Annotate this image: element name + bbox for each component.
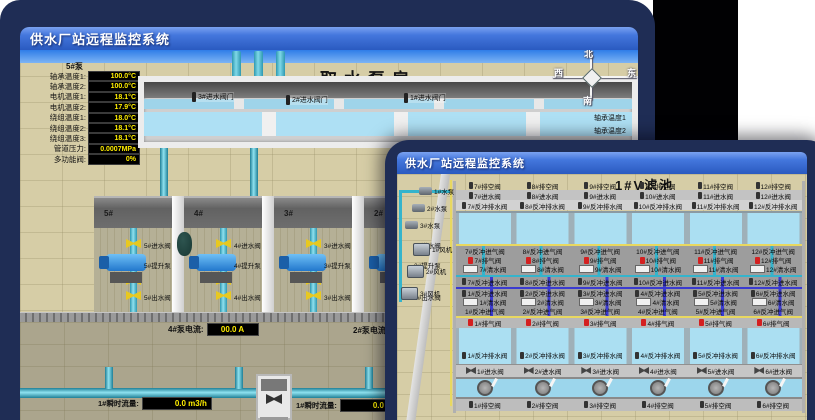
filter-pumps: 1#水泵 2#水泵 3#水泵 (405, 182, 454, 233)
riser-pipe (254, 51, 263, 78)
valve-label: 7#反冲进水阀 (467, 277, 507, 287)
valve-icon (634, 202, 638, 209)
valve-icon (642, 401, 646, 408)
blower-item[interactable]: 1#风机 (413, 238, 452, 260)
valve-bowtie-icon (581, 367, 591, 374)
valve-box-icon (635, 265, 650, 273)
pump-item[interactable]: 1#水泵 (419, 182, 454, 199)
row-drain-valves-lower: 1#排空阀2#排空阀3#排空阀4#排空阀5#排空阀6#排空阀 (456, 400, 802, 409)
valve-icon (756, 192, 760, 199)
valve-label: 6#反冲排水阀 (756, 350, 796, 360)
butterfly-valve-icon (592, 380, 608, 396)
valve-icon (693, 352, 697, 359)
alarm-valve-icon (468, 257, 473, 264)
valve-icon (640, 182, 644, 189)
row-backwash-water-valves-upper: 7#反冲进水阀8#反冲进水阀9#反冲进水阀10#反冲进水阀11#反冲进水阀12#… (456, 277, 802, 286)
valve-icon (469, 182, 473, 189)
alarm-valve-icon (468, 319, 473, 326)
valve-item[interactable]: 4#排气阀 (629, 318, 687, 327)
row-backwash-drain-valves-upper: 7#反冲排水阀8#反冲排水阀9#反冲排水阀10#反冲排水阀11#反冲排水阀12#… (456, 201, 802, 210)
pump-label: 3#提升泵 (324, 260, 351, 270)
valve-item[interactable]: 1#排气阀 (456, 318, 514, 327)
sensor-label-partial: 轴承温度1 (594, 113, 626, 123)
valve-label: 1#反冲排水阀 (467, 350, 507, 360)
valve-item[interactable]: 5#反冲进水阀 (687, 289, 745, 297)
valve-label: 9#进水阀 (589, 191, 616, 201)
sensor-label: 电机温度1: (34, 91, 86, 102)
screenshot-canvas: 供水厂站远程监控系统 取水泵房 5#泵 轴承温度1: 100.0°C 轴承温度2… (0, 0, 815, 420)
pump-icon (412, 204, 425, 212)
valve-icon (578, 352, 582, 359)
valve-label: 12#反冲排水阀 (754, 201, 797, 211)
alarm-valve-icon (640, 257, 645, 264)
compass-south: 南 (583, 94, 592, 107)
flow-value: 0.0 m3/h (142, 397, 212, 410)
pump-icon[interactable] (286, 254, 326, 271)
valve-item[interactable]: 10#进水阀 (629, 191, 687, 200)
valve-label: 6#排气阀 (763, 318, 790, 328)
valve-item[interactable]: 2#反冲排水阀 (514, 351, 572, 359)
valve-item[interactable]: 12#排气阀 (744, 256, 802, 264)
blower-label: 2#风机 (426, 266, 446, 276)
tank-down-pipe (160, 148, 168, 196)
valve-label: 8#进水阀 (532, 191, 559, 201)
valve-box-icon (750, 265, 765, 273)
valve-label: 3#排空阀 (589, 400, 616, 410)
valve-item[interactable]: 3#排气阀 (571, 318, 629, 327)
pump-label: 1#水泵 (434, 186, 454, 196)
valve-icon (692, 202, 696, 209)
valve-label: 1#进水阀 (477, 366, 504, 376)
valve-label: 12#反冲进水阀 (754, 277, 797, 287)
dosing-tank-icon (177, 232, 192, 256)
sensor-label: 管道压力: (34, 143, 86, 154)
pump-base (200, 272, 232, 283)
valve-item[interactable]: 3#进水阀 (571, 365, 629, 376)
blower-item[interactable]: 2#风机 (407, 260, 452, 282)
current-label: 2#泵电流: (353, 325, 389, 336)
gate-valve-label[interactable]: 2#进水阀门 (286, 95, 328, 105)
current-readout: 2#泵电流: (353, 325, 389, 336)
valve-icon (700, 401, 704, 408)
sensor-value: 17.9°C (88, 102, 140, 113)
valve-item[interactable]: 2#反冲进水阀 (514, 289, 572, 297)
valve-item[interactable]: 8#清水阀 (514, 265, 572, 273)
valve-label: 11#清水阀 (709, 264, 739, 274)
butterfly-valve[interactable] (744, 380, 802, 395)
valve-label: 12#进水阀 (761, 191, 791, 201)
valve-icon (527, 401, 531, 408)
valve-box-icon (636, 298, 651, 306)
valve-item[interactable]: 10#反冲进水阀 (629, 277, 687, 286)
window-v-filter: 供水厂站远程监控系统 1#V滤池 1#水泵 2#水泵 (397, 152, 807, 420)
valve-item[interactable]: 7#清水阀 (456, 265, 514, 273)
blower-icon (407, 265, 424, 278)
alarm-valve-icon (526, 257, 531, 264)
valve-icon (749, 202, 753, 209)
window-title: 供水厂站远程监控系统 (30, 29, 170, 48)
valve-label: 11#进水阀 (703, 191, 733, 201)
bay-id-label: 2# (374, 209, 383, 218)
valve-item[interactable]: 8#排空阀 (514, 181, 572, 190)
current-readout: 4#泵电流: 00.0 A (168, 323, 259, 336)
sensor-label: 绕组温度2: (34, 123, 86, 134)
sensor-label-partial: 轴承温度2 (594, 126, 626, 136)
valve-icon (635, 290, 639, 297)
window-v-filter-frame: 供水厂站远程监控系统 1#V滤池 1#水泵 2#水泵 (385, 140, 815, 420)
alarm-valve-icon (526, 319, 531, 326)
valve-bowtie-icon (466, 367, 476, 374)
valve-item[interactable]: 4#反冲进气阀 (629, 307, 687, 315)
valve-item[interactable]: 2#排空阀 (514, 400, 572, 409)
tank-water-row (144, 112, 632, 136)
sensor-label: 绕组温度1: (34, 112, 86, 123)
valve-item[interactable]: 12#进水阀 (744, 191, 802, 200)
valve-item[interactable]: 7#反冲进气阀 (456, 247, 514, 255)
sensor-value: 0.0007MPa (88, 144, 140, 155)
butterfly-valve[interactable] (629, 380, 687, 395)
valve-icon (584, 401, 588, 408)
filter-cells-upper (456, 211, 802, 244)
valve-label: 5#反冲排水阀 (698, 350, 738, 360)
valve-label: 5#反冲进气阀 (696, 306, 736, 316)
valve-item[interactable]: 9#反冲排水阀 (571, 201, 629, 210)
valve-bowtie-icon (697, 367, 707, 374)
flow-meter-icon[interactable] (256, 374, 292, 420)
alarm-valve-icon (641, 319, 646, 326)
valve-item[interactable]: 9#排气阀 (571, 256, 629, 264)
scene-v-filter: 1#V滤池 1#水泵 2#水泵 3#水泵 (397, 174, 807, 420)
alarm-valve-icon (757, 319, 762, 326)
valve-item[interactable]: 9#清水阀 (571, 265, 629, 273)
valve-item[interactable]: 1#进水阀 (456, 365, 514, 376)
valve-item[interactable]: 6#反冲进水阀 (744, 289, 802, 297)
pump-item[interactable]: 2#水泵 (412, 199, 454, 216)
valve-item[interactable]: 8#进水阀 (514, 191, 572, 200)
valve-icon (578, 278, 582, 285)
flow-readout: 1#瞬时流量: 0.0 m3/h (98, 397, 212, 410)
row-backwash-air-valves-lower: 1#反冲进气阀2#反冲进气阀3#反冲进气阀4#反冲进气阀5#反冲进气阀6#反冲进… (456, 307, 802, 315)
valve-icon (469, 401, 473, 408)
tank-down-pipe (250, 148, 258, 196)
valve-item[interactable]: 5#反冲进气阀 (687, 307, 745, 315)
bay-id-label: 5# (104, 209, 113, 218)
valve-label: 8#清水阀 (537, 264, 564, 274)
valve-label: 7#进水阀 (474, 191, 501, 201)
valve-icon (751, 352, 755, 359)
pump-item[interactable]: 3#水泵 (405, 216, 454, 233)
valve-icon (578, 202, 582, 209)
valve-label: 2#排空阀 (532, 400, 559, 410)
valve-label: 2#反冲排水阀 (525, 350, 565, 360)
outlet-valve-label: 3#出水阀 (324, 292, 351, 302)
riser-pipe (276, 51, 285, 78)
valve-item[interactable]: 7#排气阀 (456, 256, 514, 264)
row-drain-valves-upper: 7#排空阀8#排空阀9#排空阀10#排空阀11#排空阀12#排空阀 (456, 181, 802, 190)
valve-label: 2#排气阀 (532, 318, 559, 328)
valve-item[interactable]: 12#反冲进水阀 (744, 277, 802, 286)
valve-item[interactable]: 6#反冲排水阀 (744, 351, 802, 359)
valve-icon (462, 352, 466, 359)
valve-label: 12#排空阀 (761, 181, 791, 191)
valve-item[interactable]: 3#排空阀 (571, 400, 629, 409)
valve-item[interactable]: 8#反冲排水阀 (514, 201, 572, 210)
valve-item[interactable]: 1#清水阀 (456, 298, 514, 306)
valve-label: 9#清水阀 (595, 264, 622, 274)
valve-icon (520, 290, 524, 297)
valve-item[interactable]: 4#进水阀 (629, 365, 687, 376)
valve-label: 6#排空阀 (762, 400, 789, 410)
sensor-value: 100.0°C (88, 81, 140, 92)
valve-bowtie-icon (639, 367, 649, 374)
valve-label: 5#排空阀 (705, 400, 732, 410)
valve-item[interactable]: 7#进水阀 (456, 191, 514, 200)
valve-label: 10#进水阀 (645, 191, 675, 201)
row-inlet-valves-lower: 1#进水阀2#进水阀3#进水阀4#进水阀5#进水阀6#进水阀 (456, 365, 802, 376)
butterfly-valve[interactable] (514, 380, 572, 395)
valve-item[interactable]: 12#排空阀 (744, 181, 802, 190)
valve-item[interactable]: 12#清水阀 (744, 265, 802, 273)
valve-box-icon (693, 265, 708, 273)
sky-strip (20, 50, 638, 63)
valve-item[interactable]: 5#进水阀 (687, 365, 745, 376)
title-bar[interactable]: 供水厂站远程监控系统 (20, 27, 638, 50)
sensor-value: 0% (88, 154, 140, 165)
valve-label: 11#反冲进水阀 (697, 277, 740, 287)
sensor-label: 绕组温度3: (34, 133, 86, 144)
row-clean-water-valves-upper: 7#清水阀8#清水阀9#清水阀10#清水阀11#清水阀12#清水阀 (456, 265, 802, 273)
bay-pipe (130, 228, 137, 314)
valve-icon (634, 278, 638, 285)
valve-label: 3#进水阀 (592, 366, 619, 376)
valve-item[interactable]: 12#反冲进气阀 (744, 247, 802, 255)
valve-item[interactable]: 4#排空阀 (629, 400, 687, 409)
valve-item[interactable]: 3#清水阀 (571, 298, 629, 306)
sensor-row: 多功能阀: 0% (34, 154, 174, 164)
valve-label: 3#反冲进气阀 (580, 306, 620, 316)
valve-item[interactable]: 8#反冲进水阀 (514, 277, 572, 286)
pump-icon[interactable] (106, 254, 146, 271)
valve-label: 11#排空阀 (703, 181, 733, 191)
valve-box-icon (521, 298, 536, 306)
blower-icon (401, 287, 418, 300)
valve-label: 8#反冲排水阀 (525, 201, 565, 211)
valve-item[interactable]: 3#反冲进气阀 (571, 307, 629, 315)
valve-box-icon (463, 265, 478, 273)
valve-item[interactable]: 11#清水阀 (687, 265, 745, 273)
sensor-label: 多功能阀: (34, 154, 86, 165)
valve-icon (756, 182, 760, 189)
valve-label: 9#反冲进水阀 (583, 277, 623, 287)
valve-label: 3#反冲排水阀 (583, 350, 623, 360)
valve-item[interactable]: 1#反冲进水阀 (456, 289, 514, 297)
valve-item[interactable]: 11#反冲进水阀 (687, 277, 745, 286)
valve-item[interactable]: 4#反冲排水阀 (629, 351, 687, 359)
valve-item[interactable]: 11#反冲排水阀 (687, 201, 745, 210)
valve-label: 10#排空阀 (645, 181, 675, 191)
pump-base (290, 272, 322, 283)
butterfly-valve[interactable] (571, 380, 629, 395)
valve-item[interactable]: 11#排气阀 (687, 256, 745, 264)
valve-item[interactable]: 2#进水阀 (514, 365, 572, 376)
pump-icon (419, 187, 432, 195)
valve-item[interactable]: 11#反冲进气阀 (687, 247, 745, 255)
butterfly-valve-icon (477, 380, 493, 396)
compass-star-icon (582, 68, 602, 88)
valve-label: 7#排空阀 (474, 181, 501, 191)
valve-label: 7#反冲排水阀 (467, 201, 507, 211)
valve-item[interactable]: 7#排空阀 (456, 181, 514, 190)
valve-item[interactable]: 9#反冲进水阀 (571, 277, 629, 286)
bay-pipe (220, 228, 227, 314)
valve-item[interactable]: 11#进水阀 (687, 191, 745, 200)
valve-label: 8#排空阀 (532, 181, 559, 191)
valve-item[interactable]: 5#排空阀 (687, 400, 745, 409)
alarm-valve-icon (584, 319, 589, 326)
valve-item[interactable]: 10#排气阀 (629, 256, 687, 264)
valve-item[interactable]: 1#排空阀 (456, 400, 514, 409)
valve-label: 10#清水阀 (651, 264, 681, 274)
filter-blowers: 1#风机 2#风机 3#风机 (401, 238, 452, 304)
valve-item[interactable]: 8#排气阀 (514, 256, 572, 264)
valve-item[interactable]: 5#反冲排水阀 (687, 351, 745, 359)
valve-icon (640, 192, 644, 199)
valve-item[interactable]: 10#反冲排水阀 (629, 201, 687, 210)
outlet-valve-label: 5#出水阀 (144, 292, 171, 302)
valve-item[interactable]: 10#反冲进气阀 (629, 247, 687, 255)
alarm-valve-icon (698, 257, 703, 264)
valve-label: 5#进水阀 (708, 366, 735, 376)
valve-item[interactable]: 9#反冲进气阀 (571, 247, 629, 255)
valve-item[interactable]: 6#排空阀 (744, 400, 802, 409)
valve-icon (578, 290, 582, 297)
window-title: 供水厂站远程监控系统 (405, 155, 525, 171)
pump-icon[interactable] (196, 254, 236, 271)
inlet-valve-label: 4#进水阀 (234, 240, 261, 250)
valve-bowtie-icon (524, 367, 534, 374)
sensor-value: 18.0°C (88, 113, 140, 124)
valve-item[interactable]: 6#清水阀 (744, 298, 802, 306)
gate-valve-label[interactable]: 1#进水阀门 (404, 93, 446, 103)
valve-item[interactable]: 8#反冲进气阀 (514, 247, 572, 255)
butterfly-valve-icon (708, 380, 724, 396)
valve-item[interactable]: 12#反冲排水阀 (744, 201, 802, 210)
row-inlet-valves-upper: 7#进水阀8#进水阀9#进水阀10#进水阀11#进水阀12#进水阀 (456, 191, 802, 200)
current-value: 00.0 A (207, 323, 259, 336)
inlet-valve-label: 3#进水阀 (324, 240, 351, 250)
current-label: 4#泵电流: (168, 324, 204, 335)
row-backwash-air-valves-upper: 7#反冲进气阀8#反冲进气阀9#反冲进气阀10#反冲进气阀11#反冲进气阀12#… (456, 247, 802, 255)
valve-icon (520, 278, 524, 285)
blower-label: 1#风机 (432, 244, 452, 254)
gate-valve-label[interactable]: 3#进水阀门 (192, 92, 234, 102)
sensor-label: 电机温度2: (34, 102, 86, 113)
valve-item[interactable]: 6#排气阀 (744, 318, 802, 327)
valve-label: 2#进水阀 (535, 366, 562, 376)
valve-icon (462, 202, 466, 209)
valve-item[interactable]: 1#反冲进气阀 (456, 307, 514, 315)
bay-id-label: 3# (284, 209, 293, 218)
title-bar[interactable]: 供水厂站远程监控系统 (397, 152, 807, 174)
valve-item[interactable]: 11#排空阀 (687, 181, 745, 190)
valve-icon (692, 278, 696, 285)
butterfly-valve[interactable] (456, 380, 514, 395)
compass-north: 北 (584, 50, 593, 60)
valve-box-icon (752, 298, 767, 306)
pump-label: 5#提升泵 (144, 260, 171, 270)
valve-label: 9#排空阀 (589, 181, 616, 191)
valve-icon (462, 278, 466, 285)
valve-item[interactable]: 5#清水阀 (687, 298, 745, 306)
alarm-valve-icon (755, 257, 760, 264)
sensor-value: 18.1°C (88, 133, 140, 144)
valve-icon (749, 278, 753, 285)
valve-item[interactable]: 4#清水阀 (629, 298, 687, 306)
compass-east: 东 (627, 66, 636, 79)
valve-label: 3#排气阀 (590, 318, 617, 328)
valve-label: 10#反冲排水阀 (639, 201, 682, 211)
sensor-value: 18.1°C (88, 123, 140, 134)
valve-item[interactable]: 10#清水阀 (629, 265, 687, 273)
valve-item[interactable]: 6#反冲进气阀 (744, 307, 802, 315)
riser-pipe (232, 51, 241, 78)
valve-box-icon (694, 298, 709, 306)
valve-icon (584, 192, 588, 199)
valve-item[interactable]: 1#反冲排水阀 (456, 351, 514, 359)
butterfly-valve[interactable] (687, 380, 745, 395)
bay-id-label: 4# (194, 209, 203, 218)
pump-base (110, 272, 142, 283)
valve-item[interactable]: 4#反冲进水阀 (629, 289, 687, 297)
valve-item[interactable]: 7#反冲排水阀 (456, 201, 514, 210)
valve-item[interactable]: 9#进水阀 (571, 191, 629, 200)
flow-label: 1#瞬时流量: (296, 400, 337, 411)
pump-icon (405, 221, 418, 229)
valve-icon (751, 290, 755, 297)
valve-item[interactable]: 7#反冲进水阀 (456, 277, 514, 286)
valve-label: 6#反冲进气阀 (753, 306, 793, 316)
valve-item[interactable]: 5#排气阀 (687, 318, 745, 327)
valve-item[interactable]: 3#反冲排水阀 (571, 351, 629, 359)
valve-item[interactable]: 10#排空阀 (629, 181, 687, 190)
filter-block: 7#排空阀8#排空阀9#排空阀10#排空阀11#排空阀12#排空阀 7#进水阀8… (453, 181, 805, 413)
valve-icon (520, 202, 524, 209)
valve-item[interactable]: 2#反冲进气阀 (514, 307, 572, 315)
valve-icon (462, 290, 466, 297)
valve-label: 9#反冲排水阀 (583, 201, 623, 211)
valve-item[interactable]: 9#排空阀 (571, 181, 629, 190)
flow-meter-display (261, 379, 287, 391)
valve-item[interactable]: 6#进水阀 (744, 365, 802, 376)
pipe-stub (235, 367, 243, 389)
pipe-stub (105, 367, 113, 389)
valve-label: 5#排气阀 (705, 318, 732, 328)
valve-item[interactable]: 2#清水阀 (514, 298, 572, 306)
valve-item[interactable]: 2#排气阀 (514, 318, 572, 327)
valve-label: 11#反冲排水阀 (697, 201, 740, 211)
valve-item[interactable]: 3#反冲进水阀 (571, 289, 629, 297)
row-exhaust-valves-lower: 1#排气阀2#排气阀3#排气阀4#排气阀5#排气阀6#排气阀 (456, 318, 802, 327)
valve-box-icon (579, 265, 594, 273)
valve-label: 4#进水阀 (650, 366, 677, 376)
valve-label: 1#反冲进气阀 (465, 306, 505, 316)
flow-label: 1#瞬时流量: (98, 398, 139, 409)
valve-label: 4#反冲进气阀 (638, 306, 678, 316)
valve-icon (698, 192, 702, 199)
butterfly-valve-icon (535, 380, 551, 396)
blower-item[interactable]: 3#风机 (401, 282, 452, 304)
valve-icon (693, 290, 697, 297)
